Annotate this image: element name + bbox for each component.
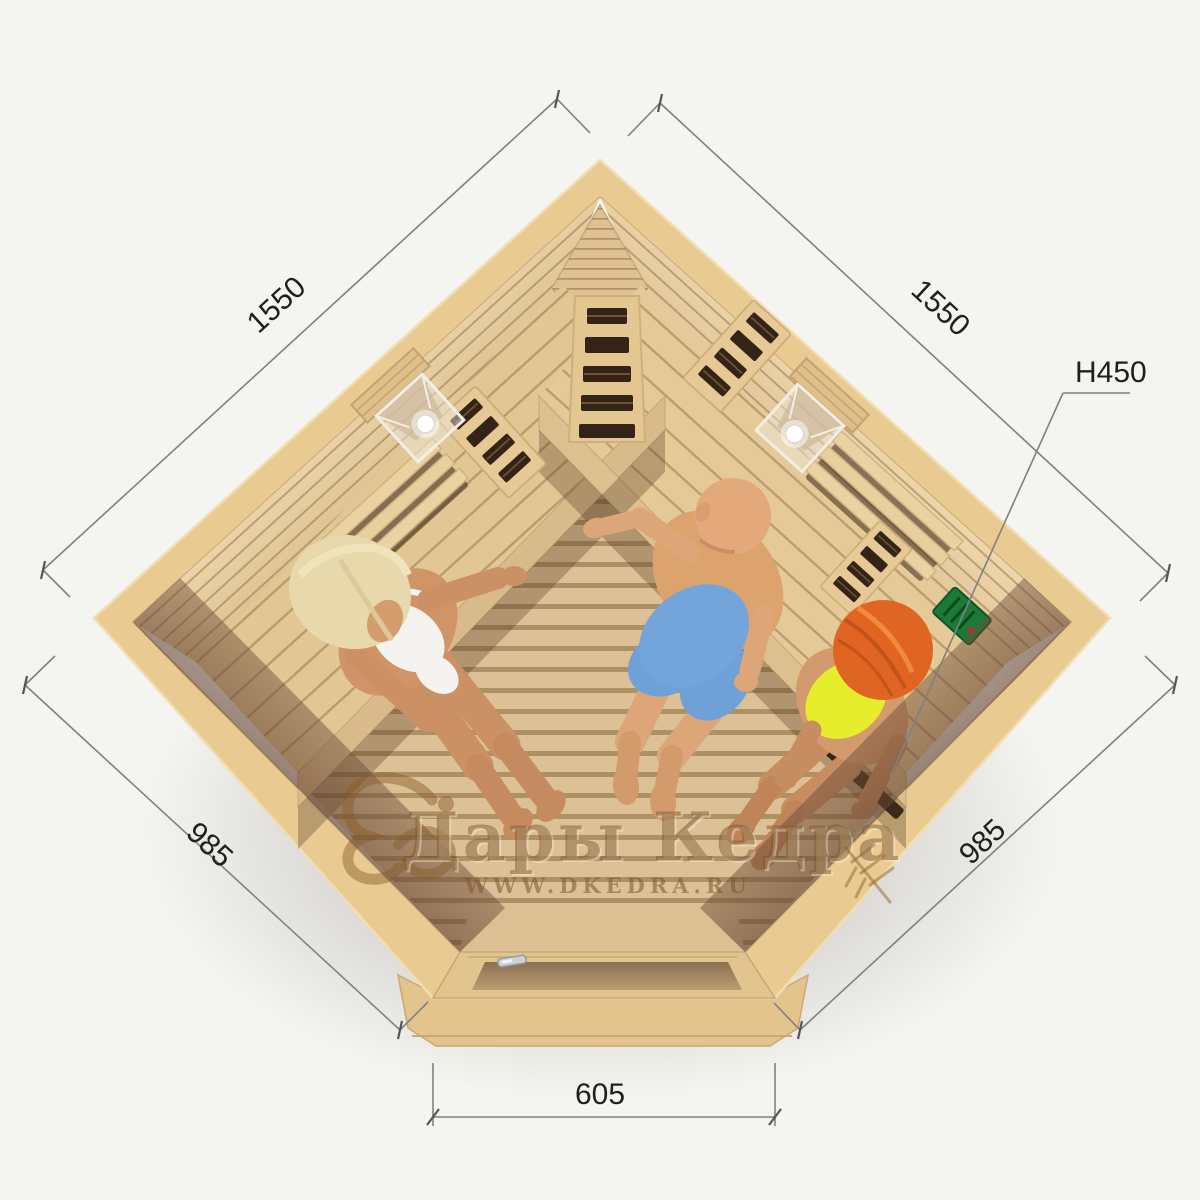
dimension-label-height: H450: [1075, 356, 1147, 389]
watermark-title: Дары Кедра: [401, 798, 903, 876]
watermark-website: WWW.DKEDRA.RU: [463, 873, 751, 898]
sauna-top-view-render: Дары Кедра Дары Кедра WWW.DKEDRA.RU: [0, 0, 1200, 1200]
corner-heater-grille: [569, 296, 645, 442]
dimension-label-door: 605: [575, 1078, 625, 1111]
door-glass: [472, 962, 742, 990]
floor-border-strip: [460, 905, 745, 950]
front-door-wall: [433, 952, 775, 998]
product-render-stage: Дары Кедра Дары Кедра WWW.DKEDRA.RU: [0, 0, 1200, 1200]
red-hair: [833, 600, 933, 700]
